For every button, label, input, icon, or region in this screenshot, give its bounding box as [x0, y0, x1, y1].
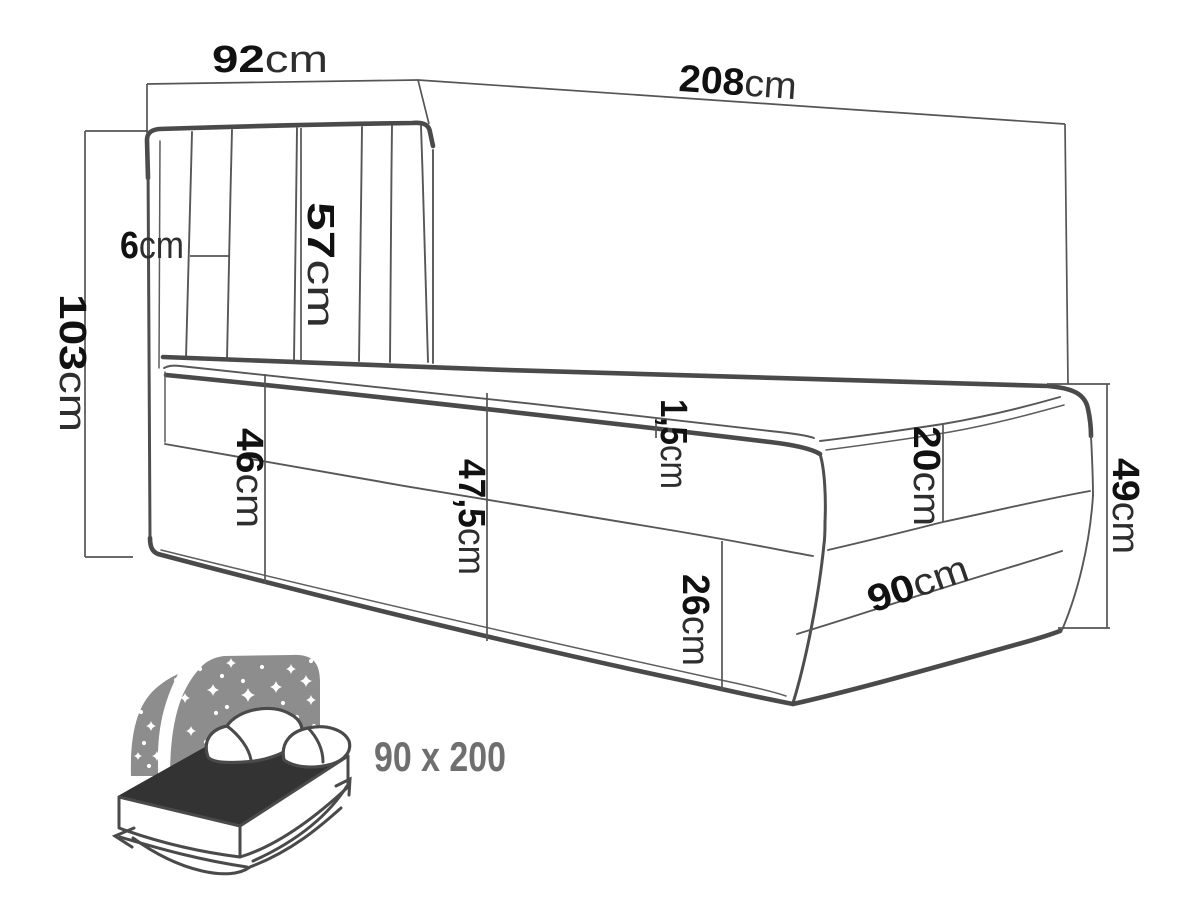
mattress-front-corner-edge: [793, 454, 825, 703]
star-icon: [281, 701, 285, 705]
dimension-mattress-height: 20cm: [905, 425, 947, 526]
star-icon: [147, 764, 151, 768]
headboard-flute-line: [227, 130, 232, 359]
dimension-total-length: 208cm: [418, 58, 1068, 384]
star-icon: [214, 711, 218, 715]
dimension-height-mid: 47,5cm: [450, 393, 492, 641]
star-icon: [142, 741, 146, 745]
dimension-label-57cm: 57cm: [299, 202, 341, 328]
dimension-base-lower-height: 26cm: [674, 541, 722, 690]
size-icon: 90 x 200: [115, 655, 506, 874]
dimension-label-90cm: 90cm: [862, 548, 974, 622]
star-icon: [139, 710, 143, 714]
headboard-right-border-line: [421, 126, 428, 362]
headboard-flute-line: [186, 132, 192, 358]
dimensions: 92cm 208cm 103cm 6cm 57cm 1,5cm 46c: [51, 39, 1146, 690]
dimension-label-208cm: 208cm: [678, 58, 799, 108]
dimension-foot-width: 90cm: [862, 548, 974, 622]
dimension-label-103cm: 103cm: [51, 294, 93, 432]
extension-line: [1065, 124, 1068, 384]
headboard-flute-line: [359, 127, 362, 361]
headboard-flute-line: [294, 128, 297, 360]
star-icon: [161, 735, 165, 739]
dimension-label-20cm: 20cm: [905, 426, 947, 526]
base-foot-seam: [828, 491, 1090, 550]
storage-bed-starry-headboard-icon: [115, 655, 350, 874]
star-icon: [225, 705, 229, 709]
bed-drawing: [147, 123, 1093, 704]
headboard-left-edge: [148, 160, 150, 538]
star-icon: [220, 674, 224, 678]
dimension-label-46cm: 46cm: [228, 428, 270, 528]
star-icon: [309, 659, 313, 663]
base-foot-right-edge: [1062, 495, 1093, 630]
dimension-headboard-panel-height: 57cm: [299, 128, 341, 362]
dimension-label-47-5cm: 47,5cm: [450, 459, 492, 575]
star-icon: [241, 679, 245, 683]
dimension-label-6cm: 6cm: [120, 225, 184, 267]
star-icon: [260, 665, 264, 669]
headboard: [147, 123, 433, 538]
icon-pillow-right: [283, 727, 349, 767]
dimension-headboard-width: 92cm: [147, 39, 429, 133]
bed-diagram-canvas: 92cm 208cm 103cm 6cm 57cm 1,5cm 46c: [0, 0, 1200, 899]
dimension-foot-total-height: 49cm: [1047, 384, 1146, 628]
dimension-headboard-side: 6cm: [120, 225, 229, 267]
dimension-topper-thickness: 1,5cm: [652, 399, 694, 489]
dimension-label-26cm: 26cm: [674, 574, 716, 666]
star-icon: [198, 667, 202, 671]
base-foot-bottom-edge: [793, 631, 1060, 704]
size-badge: 90 x 200: [374, 733, 506, 780]
dimension-label-1-5cm: 1,5cm: [652, 399, 694, 489]
bed-dimension-diagram-page: 92cm 208cm 103cm 6cm 57cm 1,5cm 46c: [0, 0, 1200, 899]
star-icon: [162, 712, 170, 720]
dimension-label-49cm: 49cm: [1104, 458, 1146, 554]
mattress-foot-right-edge: [1091, 436, 1093, 495]
mattress: [163, 357, 1093, 703]
dimension-height-at-head: 46cm: [228, 374, 270, 584]
dimension-total-height: 103cm: [51, 131, 148, 557]
dimension-label-92cm: 92cm: [212, 39, 328, 81]
extension-line: [418, 80, 429, 124]
star-icon: [174, 678, 178, 682]
headboard-top-edge: [147, 123, 433, 178]
headboard-flute-line: [390, 126, 392, 362]
